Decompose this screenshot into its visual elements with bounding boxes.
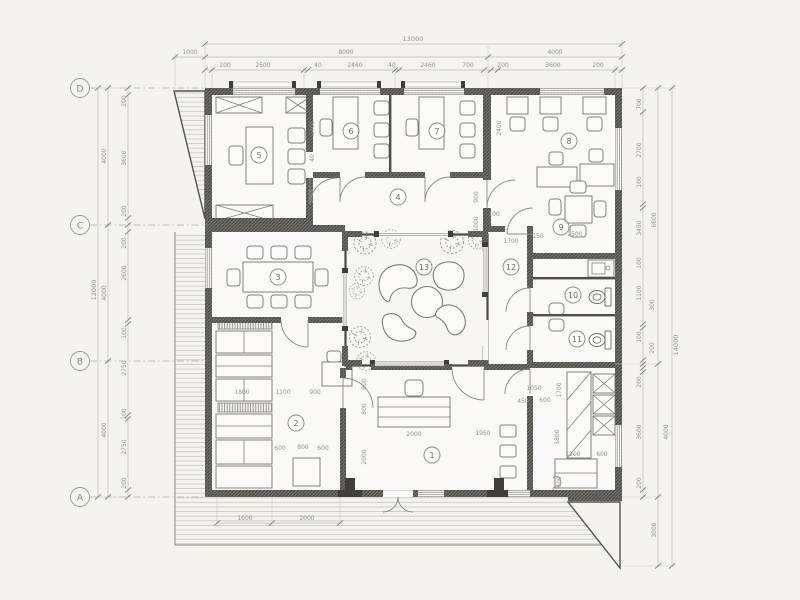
desk — [333, 97, 358, 149]
dim-label: 1700 — [556, 382, 563, 397]
dim-label: 6600 — [651, 212, 658, 227]
window-top-1 — [233, 89, 295, 95]
courtyard-door-opening — [482, 320, 488, 360]
dim-label: 2000 — [299, 515, 314, 522]
dim-label: 200 — [649, 342, 656, 354]
column — [494, 478, 504, 491]
dim-label: 3000 — [651, 522, 658, 537]
dim-label: 700 — [462, 62, 474, 69]
dim-label: 14000 — [672, 335, 680, 356]
dim-label: 800 — [297, 444, 309, 451]
window-bottom-1 — [418, 491, 444, 497]
room-label-12: 12 — [506, 263, 516, 272]
dim-label: 700 — [636, 98, 643, 110]
dim-label: 2400 — [496, 120, 503, 135]
dim-label: 40 — [314, 62, 322, 69]
desk — [419, 97, 444, 149]
cabinet — [293, 458, 320, 486]
dim-label: 2750 — [121, 439, 128, 454]
dim-label: 200 — [497, 62, 509, 69]
dim-label: 1800 — [554, 429, 561, 444]
courtyard-window-left — [342, 273, 348, 326]
room-label-9: 9 — [558, 223, 563, 232]
dim-label: 2600 — [255, 62, 270, 69]
dim-label: 450 — [517, 398, 529, 405]
room-label-13: 13 — [419, 263, 429, 272]
room-label-2: 2 — [293, 419, 298, 428]
room-label-10: 10 — [568, 291, 578, 300]
dim-label: 40 — [309, 154, 316, 162]
dim-label: 4000 — [547, 49, 562, 56]
left-deck — [175, 232, 205, 497]
room-label-11: 11 — [572, 335, 582, 344]
dim-label: 900 — [309, 389, 321, 396]
dim-label: 2500 — [567, 231, 582, 238]
dim-label: 2000 — [361, 449, 368, 464]
dim-label: 3600 — [545, 62, 560, 69]
dim-label: 200 — [121, 205, 128, 217]
washbasin — [549, 303, 564, 315]
dim-label: 600 — [274, 445, 286, 452]
dim-label: 2400 — [309, 120, 316, 135]
counter — [567, 372, 591, 458]
window-left-1 — [205, 115, 211, 165]
dim-label: 4000 — [101, 148, 108, 163]
dim-label: 1000 — [308, 188, 315, 203]
dim-label: 8000 — [338, 49, 353, 56]
floor-plan-canvas: D C B A 1 2 3 4 5 6 7 8 9 10 11 12 13 13… — [0, 0, 800, 600]
window-bottom-2 — [508, 491, 530, 497]
table — [565, 196, 592, 223]
dim-label: 4000 — [101, 285, 108, 300]
dim-label: 100 — [636, 176, 643, 188]
room-label-7: 7 — [434, 127, 439, 136]
window-top-4 — [540, 89, 604, 95]
dim-label: 300 — [649, 299, 656, 311]
dim-label: 2700 — [636, 142, 643, 157]
dim-label: 4000 — [663, 424, 670, 439]
grid-letter: B — [77, 358, 83, 368]
dim-label: 200 — [219, 62, 231, 69]
courtyard-window-top — [379, 232, 448, 238]
dim-label: 100 — [488, 211, 500, 218]
dim-label: 1050 — [526, 385, 541, 392]
dim-label: 600 — [539, 397, 551, 404]
window-right-1 — [615, 128, 621, 190]
room-label-8: 8 — [566, 137, 571, 146]
dim-label: 1000 — [182, 49, 197, 56]
dim-label: 40 — [388, 62, 396, 69]
grid-letter: C — [77, 222, 83, 232]
dim-label: 1100 — [275, 389, 290, 396]
dim-label: 600 — [317, 445, 329, 452]
dim-label: 2460 — [420, 62, 435, 69]
reception-desk — [378, 397, 450, 427]
window-top-3 — [404, 89, 464, 95]
dim-label: 200 — [636, 376, 643, 388]
room-label-5: 5 — [256, 151, 261, 160]
dim-label: 150 — [532, 233, 544, 240]
entrance-opening — [383, 490, 413, 497]
dim-label: 2750 — [121, 360, 128, 375]
dim-label: 3600 — [636, 424, 643, 439]
grid-letter: A — [77, 494, 84, 504]
dim-label: 1000 — [473, 216, 480, 231]
dim-label: 200 — [121, 95, 128, 107]
dim-label: 1200 — [565, 451, 580, 458]
dim-label: 1600 — [237, 515, 252, 522]
dim-label: 100 — [636, 331, 643, 343]
room-label-3: 3 — [275, 273, 280, 282]
dim-label: 2600 — [121, 265, 128, 280]
room-label-6: 6 — [348, 127, 353, 136]
dim-label: 4000 — [101, 422, 108, 437]
dim-label: 900 — [473, 191, 480, 203]
dim-label: 1100 — [636, 285, 643, 300]
dim-label: 600 — [556, 476, 563, 488]
dim-label: 100 — [636, 257, 643, 269]
courtyard-window-bottom — [375, 360, 444, 366]
dim-label: 100 — [121, 408, 128, 420]
dim-label: 100 — [121, 327, 128, 339]
dim-label: 800 — [361, 378, 368, 390]
washbasin — [549, 319, 564, 331]
dim-label: 3600 — [121, 150, 128, 165]
dim-label: 13000 — [403, 35, 424, 43]
dim-label: 2460 — [347, 62, 362, 69]
dim-label: 12000 — [90, 280, 98, 301]
dim-label: 2000 — [406, 431, 421, 438]
dim-label: 200 — [592, 62, 604, 69]
dim-label: 1950 — [475, 430, 490, 437]
chair — [405, 380, 423, 396]
courtyard-window-right — [482, 247, 488, 292]
chair — [229, 146, 243, 165]
dim-label: 200 — [121, 477, 128, 489]
dim-label: 200 — [121, 237, 128, 249]
dim-label: 200 — [636, 477, 643, 489]
column — [345, 478, 355, 491]
room-label-1: 1 — [429, 451, 434, 460]
bean-sofa — [433, 262, 464, 290]
dim-label: 3450 — [636, 220, 643, 235]
dim-label: 800 — [361, 403, 368, 415]
dim-label: 1800 — [234, 389, 249, 396]
window-right-2 — [615, 425, 621, 467]
window-top-2 — [320, 89, 380, 95]
dim-label: 600 — [596, 451, 608, 458]
window-left-2 — [205, 248, 211, 288]
dim-label: 1700 — [503, 238, 518, 245]
room-label-4: 4 — [395, 193, 400, 202]
grid-letter: D — [77, 85, 84, 95]
